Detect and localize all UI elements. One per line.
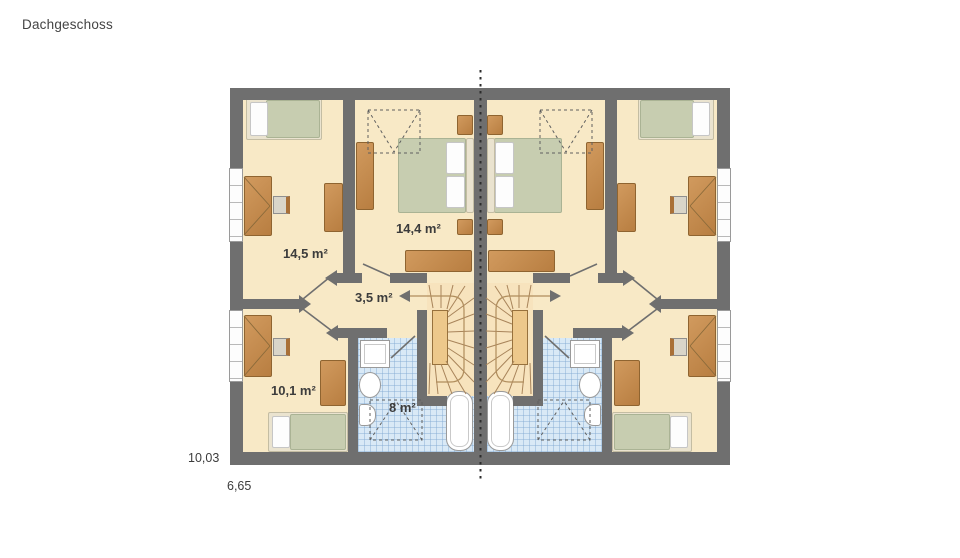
wall-stair-left — [417, 310, 427, 406]
bed-blanket — [614, 414, 670, 450]
wall-stair-right — [513, 396, 543, 406]
bed-pillow — [495, 142, 514, 174]
wall-stair-left — [417, 396, 447, 406]
wall-interior — [390, 273, 427, 283]
room-label-8: 8 m² — [389, 400, 416, 415]
wall-interior — [243, 299, 300, 309]
desk — [688, 315, 716, 377]
page-title: Dachgeschoss — [22, 17, 113, 32]
sink — [359, 372, 381, 398]
wall-exterior-right — [717, 88, 730, 465]
dimension-depth: 6,65 — [227, 479, 251, 493]
wall-interior — [336, 273, 362, 283]
bed-blanket — [266, 100, 320, 138]
dresser — [614, 360, 640, 406]
sideboard — [488, 250, 555, 272]
wall-exterior-left — [230, 88, 243, 465]
chair — [670, 196, 687, 214]
bathtub — [487, 391, 514, 451]
shower — [570, 340, 600, 368]
stair-newel — [432, 310, 448, 365]
wall-interior — [533, 273, 570, 283]
bed-pillow — [250, 102, 268, 136]
chair — [273, 338, 290, 356]
bed-pillow — [670, 416, 688, 448]
shower — [360, 340, 390, 368]
dresser — [324, 183, 343, 232]
room-label-14-4: 14,4 m² — [396, 221, 441, 236]
wall-interior — [348, 330, 358, 452]
nightstand — [487, 115, 503, 135]
wall-interior — [343, 100, 355, 275]
room-label-14-5: 14,5 m² — [283, 246, 328, 261]
bed-pillow — [272, 416, 290, 448]
bed-pillow — [692, 102, 710, 136]
room-label-10-1: 10,1 m² — [271, 383, 316, 398]
wardrobe — [356, 142, 374, 210]
desk — [244, 315, 272, 377]
bed-headboard — [466, 138, 474, 213]
dresser — [617, 183, 636, 232]
bed-headboard — [487, 138, 495, 213]
wall-interior — [605, 100, 617, 275]
wall-interior — [573, 328, 623, 338]
bed-blanket — [640, 100, 694, 138]
wall-interior — [598, 273, 624, 283]
wall-interior — [602, 330, 612, 452]
nightstand — [457, 219, 473, 235]
stair-newel — [512, 310, 528, 365]
nightstand — [487, 219, 503, 235]
desk — [688, 176, 716, 236]
bed-blanket — [290, 414, 346, 450]
wall-interior — [660, 299, 717, 309]
chair — [670, 338, 687, 356]
dimension-width: 10,03 — [188, 451, 219, 465]
wall-stair-right — [533, 310, 543, 406]
bed-pillow — [446, 176, 465, 208]
dresser — [320, 360, 346, 406]
wall-interior — [337, 328, 387, 338]
window — [229, 168, 243, 242]
chair — [273, 196, 290, 214]
bathtub — [446, 391, 473, 451]
floorplan-canvas: Dachgeschoss — [0, 0, 960, 558]
room-label-3-5: 3,5 m² — [355, 290, 393, 305]
wall-party-center — [474, 88, 487, 465]
wardrobe — [586, 142, 604, 210]
bed-pillow — [446, 142, 465, 174]
window — [229, 310, 243, 382]
nightstand — [457, 115, 473, 135]
desk — [244, 176, 272, 236]
window — [717, 310, 731, 382]
sink — [579, 372, 601, 398]
bed-pillow — [495, 176, 514, 208]
sideboard — [405, 250, 472, 272]
window — [717, 168, 731, 242]
toilet — [584, 404, 601, 426]
